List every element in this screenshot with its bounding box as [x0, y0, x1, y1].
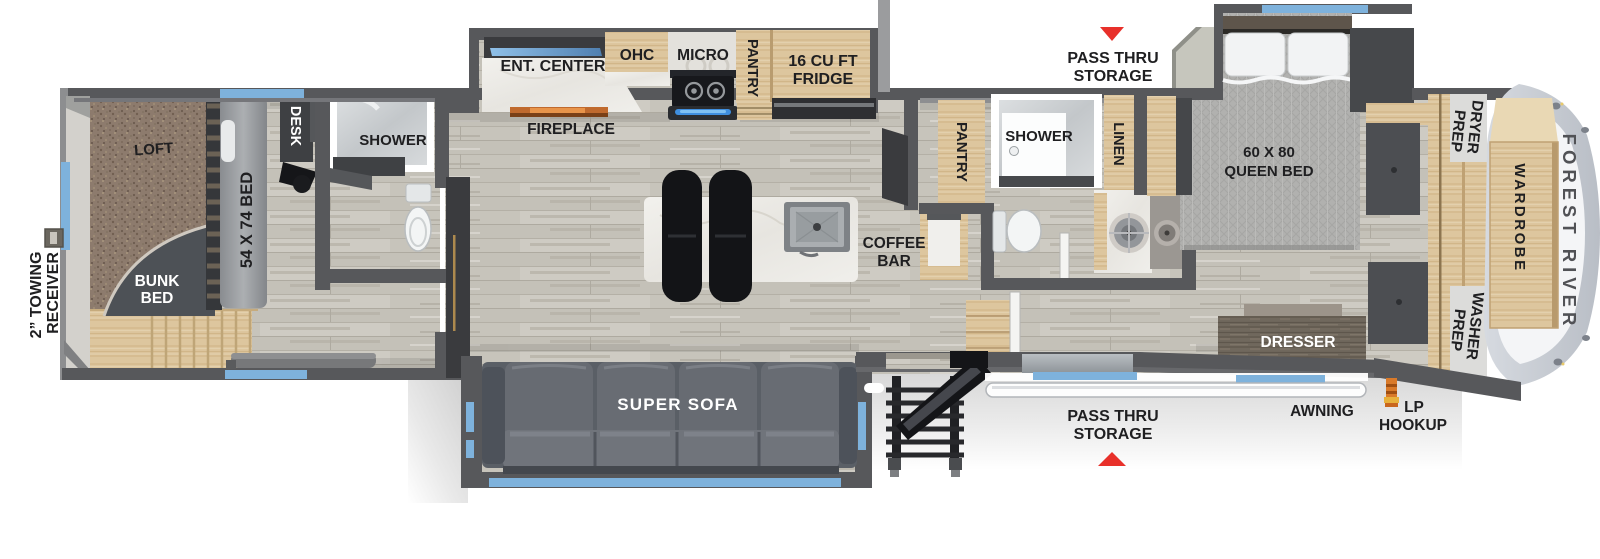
svg-text:SUPER SOFA: SUPER SOFA — [617, 395, 739, 414]
svg-text:FOREST RIVER: FOREST RIVER — [1559, 134, 1580, 331]
svg-text:QUEEN BED: QUEEN BED — [1224, 163, 1313, 180]
svg-text:LINEN: LINEN — [1110, 122, 1126, 166]
svg-text:LOFT: LOFT — [134, 140, 174, 160]
svg-text:STORAGE: STORAGE — [1074, 426, 1153, 443]
svg-text:BAR: BAR — [877, 253, 911, 270]
svg-text:DESK: DESK — [287, 106, 303, 147]
svg-text:DRESSER: DRESSER — [1261, 334, 1336, 351]
svg-text:STORAGE: STORAGE — [1074, 68, 1153, 85]
svg-text:FIREPLACE: FIREPLACE — [527, 121, 615, 138]
svg-text:PASS THRU: PASS THRU — [1067, 50, 1158, 67]
svg-text:SHOWER: SHOWER — [1005, 128, 1073, 145]
svg-text:54 X 74 BED: 54 X 74 BED — [238, 172, 256, 268]
svg-text:SHOWER: SHOWER — [359, 132, 427, 149]
svg-text:60 X 80: 60 X 80 — [1243, 144, 1295, 161]
svg-text:PANTRY: PANTRY — [953, 122, 970, 182]
svg-text:MICRO: MICRO — [677, 47, 729, 64]
svg-text:FRIDGE: FRIDGE — [793, 71, 854, 88]
svg-text:ENT. CENTER: ENT. CENTER — [501, 58, 606, 75]
svg-text:PANTRY: PANTRY — [744, 39, 760, 97]
svg-text:BUNK: BUNK — [135, 273, 181, 290]
svg-text:2” TOWING: 2” TOWING — [28, 252, 45, 339]
svg-text:RECEIVER: RECEIVER — [45, 252, 62, 334]
svg-text:PASS THRU: PASS THRU — [1067, 408, 1158, 425]
svg-text:AWNING: AWNING — [1290, 403, 1354, 420]
svg-text:16 CU FT: 16 CU FT — [788, 53, 858, 70]
svg-text:BED: BED — [141, 290, 174, 307]
svg-text:WARDROBE: WARDROBE — [1511, 163, 1528, 272]
svg-text:LP: LP — [1404, 399, 1424, 416]
svg-text:COFFEE: COFFEE — [863, 235, 926, 252]
svg-text:HOOKUP: HOOKUP — [1379, 417, 1447, 434]
svg-text:OHC: OHC — [620, 47, 654, 64]
